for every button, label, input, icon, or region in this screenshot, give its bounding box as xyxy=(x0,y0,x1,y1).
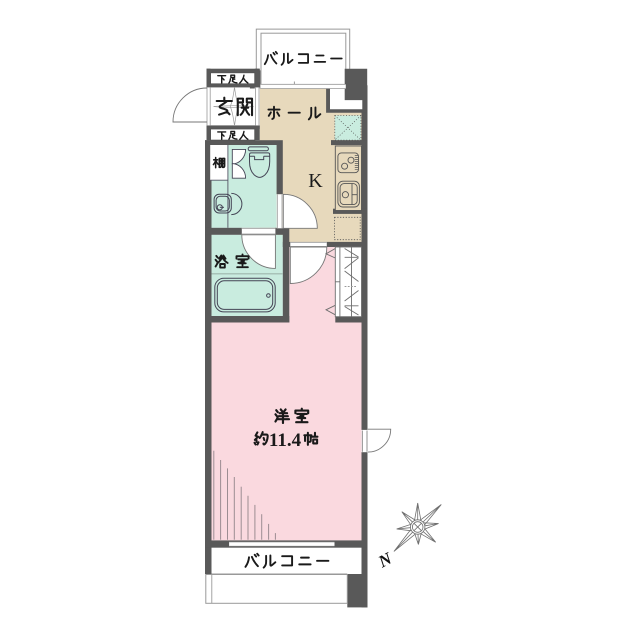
svg-text:K: K xyxy=(308,170,323,192)
svg-text:11.4: 11.4 xyxy=(269,430,302,451)
